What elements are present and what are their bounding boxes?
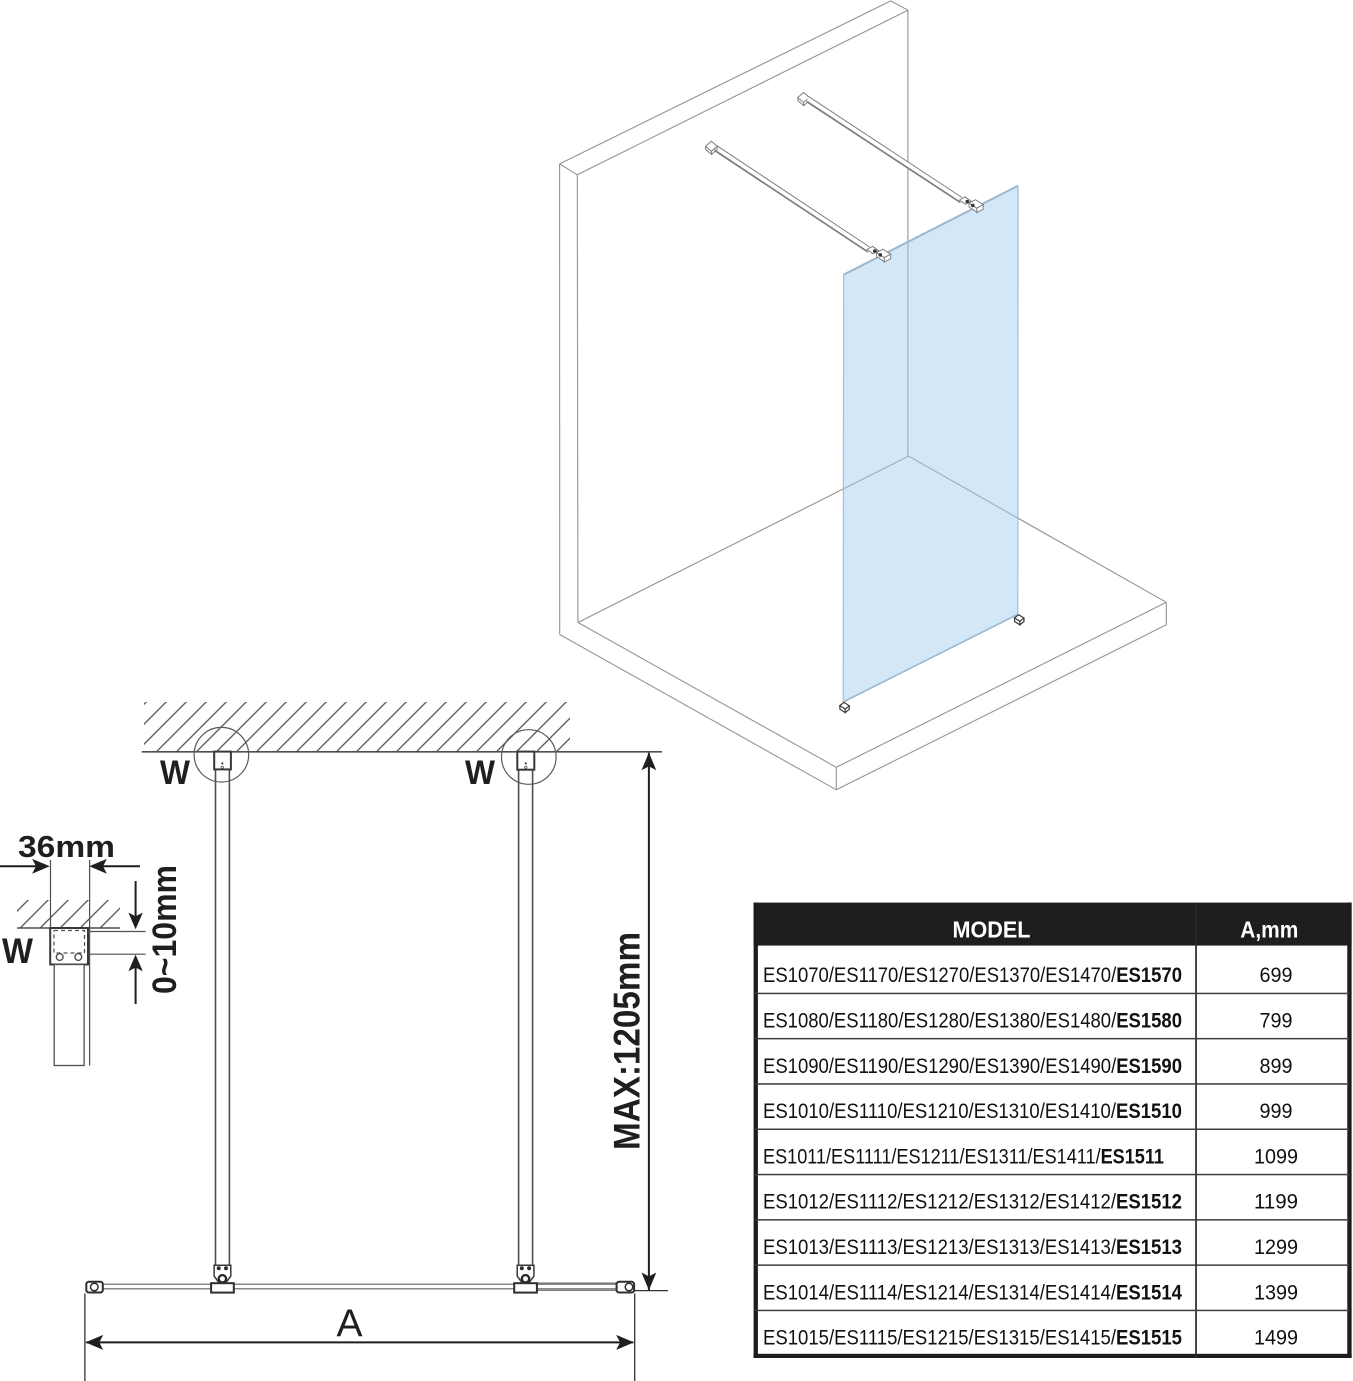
svg-text:A,mm: A,mm: [1240, 917, 1298, 943]
svg-text:ES1010/ES1110/ES1210/ES1310/ES: ES1010/ES1110/ES1210/ES1310/ES1410/ES151…: [763, 1100, 1182, 1123]
svg-text:ES1080/ES1180/ES1280/ES1380/ES: ES1080/ES1180/ES1280/ES1380/ES1480/ES158…: [763, 1010, 1182, 1033]
svg-text:1099: 1099: [1254, 1145, 1298, 1168]
svg-text:ES1012/ES1112/ES1212/ES1312/ES: ES1012/ES1112/ES1212/ES1312/ES1412/ES151…: [763, 1191, 1182, 1214]
svg-text:MAX:1205mm: MAX:1205mm: [607, 932, 648, 1150]
svg-text:1499: 1499: [1254, 1327, 1298, 1350]
svg-text:699: 699: [1260, 964, 1293, 987]
svg-text:899: 899: [1260, 1055, 1293, 1078]
svg-text:W: W: [465, 754, 496, 792]
svg-text:36mm: 36mm: [18, 829, 115, 864]
svg-text:ES1070/ES1170/ES1270/ES1370/ES: ES1070/ES1170/ES1270/ES1370/ES1470/ES157…: [763, 964, 1182, 987]
svg-text:A: A: [336, 1302, 362, 1345]
svg-text:ES1013/ES1113/ES1213/ES1313/ES: ES1013/ES1113/ES1213/ES1313/ES1413/ES151…: [763, 1236, 1182, 1259]
svg-text:1199: 1199: [1254, 1191, 1298, 1214]
svg-text:W: W: [2, 932, 33, 971]
svg-text:0~10mm: 0~10mm: [146, 865, 184, 994]
svg-text:1399: 1399: [1254, 1281, 1298, 1304]
svg-text:ES1015/ES1115/ES1215/ES1315/ES: ES1015/ES1115/ES1215/ES1315/ES1415/ES151…: [763, 1327, 1182, 1350]
svg-text:999: 999: [1260, 1100, 1293, 1123]
svg-text:799: 799: [1260, 1010, 1293, 1033]
svg-text:ES1014/ES1114/ES1214/ES1314/ES: ES1014/ES1114/ES1214/ES1314/ES1414/ES151…: [763, 1281, 1182, 1304]
svg-text:MODEL: MODEL: [953, 916, 1031, 942]
svg-text:ES1011/ES1111/ES1211/ES1311/ES: ES1011/ES1111/ES1211/ES1311/ES1411/ES151…: [763, 1145, 1164, 1168]
svg-text:W: W: [160, 754, 191, 792]
svg-text:ES1090/ES1190/ES1290/ES1390/ES: ES1090/ES1190/ES1290/ES1390/ES1490/ES159…: [763, 1055, 1182, 1078]
svg-text:1299: 1299: [1254, 1236, 1298, 1259]
